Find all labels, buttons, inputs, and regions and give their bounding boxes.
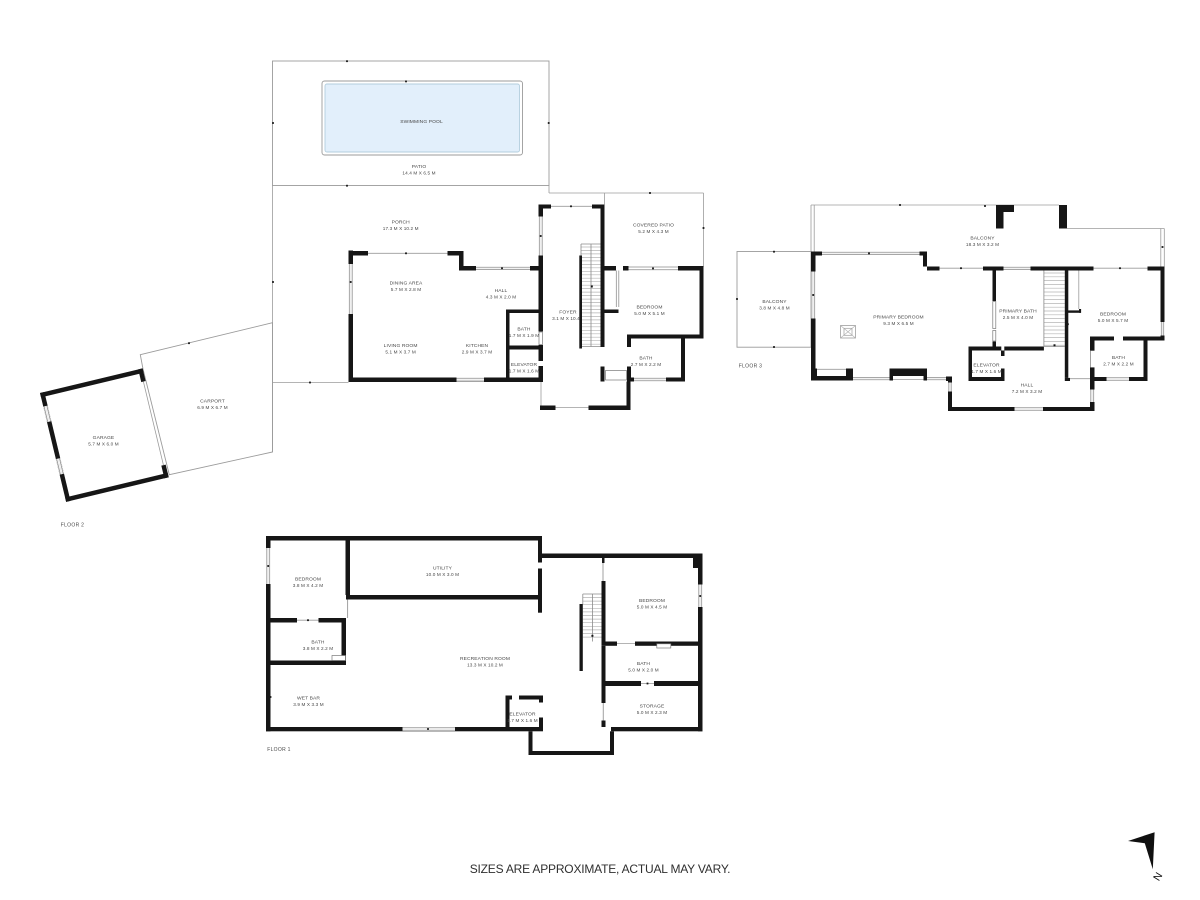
svg-text:UTILITY: UTILITY <box>433 566 453 572</box>
svg-text:COVERED PATIO: COVERED PATIO <box>633 223 674 229</box>
svg-text:ELEVATOR: ELEVATOR <box>511 362 538 368</box>
svg-text:5.0 M X 2.3 M: 5.0 M X 2.3 M <box>637 710 667 715</box>
svg-text:2.7 M X 2.2 M: 2.7 M X 2.2 M <box>1103 362 1133 367</box>
svg-text:SIZES ARE APPROXIMATE, ACTUAL: SIZES ARE APPROXIMATE, ACTUAL MAY VARY. <box>470 862 731 876</box>
svg-text:1.7 M X 1.6 M: 1.7 M X 1.6 M <box>507 718 537 723</box>
svg-text:9.3 M X 6.5 M: 9.3 M X 6.5 M <box>883 321 913 326</box>
svg-text:5.7 M X 2.8 M: 5.7 M X 2.8 M <box>391 287 421 292</box>
svg-text:3.8 M X 2.2 M: 3.8 M X 2.2 M <box>303 646 333 651</box>
svg-text:BATH: BATH <box>639 356 653 362</box>
svg-text:5.0 M X 4.5 M: 5.0 M X 4.5 M <box>637 605 667 610</box>
svg-text:HALL: HALL <box>1021 383 1034 389</box>
svg-text:HALL: HALL <box>495 288 508 294</box>
svg-text:BEDROOM: BEDROOM <box>639 598 665 604</box>
svg-text:2.9 M X 3.7 M: 2.9 M X 3.7 M <box>462 350 492 355</box>
svg-text:3.8 M X 4.2 M: 3.8 M X 4.2 M <box>293 583 323 588</box>
svg-text:13.3 M X 10.2 M: 13.3 M X 10.2 M <box>467 663 503 668</box>
svg-text:3.1 M X 10.4: 3.1 M X 10.4 <box>552 316 580 321</box>
svg-text:SWIMMING POOL: SWIMMING POOL <box>400 119 443 125</box>
svg-text:BEDROOM: BEDROOM <box>1100 312 1126 318</box>
svg-text:BALCONY: BALCONY <box>762 299 787 305</box>
svg-text:BATH: BATH <box>311 640 325 646</box>
svg-text:3.8 M X 4.8 M: 3.8 M X 4.8 M <box>759 306 789 311</box>
svg-text:1.7 M X 1.9 M: 1.7 M X 1.9 M <box>509 333 539 338</box>
svg-text:2.5 M X 4.0 M: 2.5 M X 4.0 M <box>1003 315 1033 320</box>
svg-text:CARPORT: CARPORT <box>200 399 225 405</box>
svg-text:5.7 M X 6.0 M: 5.7 M X 6.0 M <box>88 442 118 447</box>
svg-text:1.7 M X 1.6 M: 1.7 M X 1.6 M <box>509 369 539 374</box>
svg-text:STORAGE: STORAGE <box>640 704 665 710</box>
svg-text:5.0 M X 2.0 M: 5.0 M X 2.0 M <box>628 668 658 673</box>
svg-text:BATH: BATH <box>637 661 651 667</box>
svg-text:14.4 M X 6.5 M: 14.4 M X 6.5 M <box>402 171 435 176</box>
svg-text:FLOOR 3: FLOOR 3 <box>739 364 763 370</box>
svg-text:FLOOR 1: FLOOR 1 <box>267 747 291 753</box>
svg-text:ELEVATOR: ELEVATOR <box>509 712 536 718</box>
svg-text:18.3 M X 3.2 M: 18.3 M X 3.2 M <box>966 242 999 247</box>
svg-text:5.1 M X 3.7 M: 5.1 M X 3.7 M <box>385 350 415 355</box>
svg-text:PORCH: PORCH <box>392 220 411 226</box>
svg-text:PRIMARY BATH: PRIMARY BATH <box>999 309 1037 315</box>
svg-text:GARAGE: GARAGE <box>93 435 115 441</box>
svg-text:6.9 M X 6.7 M: 6.9 M X 6.7 M <box>197 405 227 410</box>
svg-text:5.0 M X 5.1 M: 5.0 M X 5.1 M <box>634 311 664 316</box>
svg-text:5.2 M X 4.3 M: 5.2 M X 4.3 M <box>638 229 668 234</box>
svg-text:3.9 M X 3.3 M: 3.9 M X 3.3 M <box>293 702 323 707</box>
svg-text:BATH: BATH <box>517 327 531 333</box>
svg-text:7.2 M X 3.2 M: 7.2 M X 3.2 M <box>1012 389 1042 394</box>
svg-text:PATIO: PATIO <box>412 164 427 170</box>
svg-text:BEDROOM: BEDROOM <box>636 305 662 311</box>
svg-text:BALCONY: BALCONY <box>970 236 995 242</box>
svg-text:FLOOR 2: FLOOR 2 <box>61 523 85 529</box>
svg-text:LIVING ROOM: LIVING ROOM <box>384 343 418 349</box>
svg-text:5.0 M X 5.7 M: 5.0 M X 5.7 M <box>1098 318 1128 323</box>
svg-text:FOYER: FOYER <box>559 310 577 316</box>
svg-text:ELEVATOR: ELEVATOR <box>973 363 1000 369</box>
svg-text:KITCHEN: KITCHEN <box>466 343 489 349</box>
svg-text:BEDROOM: BEDROOM <box>295 577 321 583</box>
svg-text:PRIMARY BEDROOM: PRIMARY BEDROOM <box>873 315 924 321</box>
svg-text:10.0 M X 3.0 M: 10.0 M X 3.0 M <box>426 572 459 577</box>
svg-text:4.3 M X 2.0 M: 4.3 M X 2.0 M <box>486 295 516 300</box>
svg-text:WET BAR: WET BAR <box>297 696 320 702</box>
svg-text:1.7 M X 1.6 M: 1.7 M X 1.6 M <box>971 369 1001 374</box>
svg-text:RECREATION ROOM: RECREATION ROOM <box>460 656 510 662</box>
svg-text:BATH: BATH <box>1112 355 1126 361</box>
svg-text:DINING AREA: DINING AREA <box>390 281 423 287</box>
svg-text:17.3 M X 10.2 M: 17.3 M X 10.2 M <box>383 226 419 231</box>
svg-text:2.7 M X 2.2 M: 2.7 M X 2.2 M <box>631 362 661 367</box>
